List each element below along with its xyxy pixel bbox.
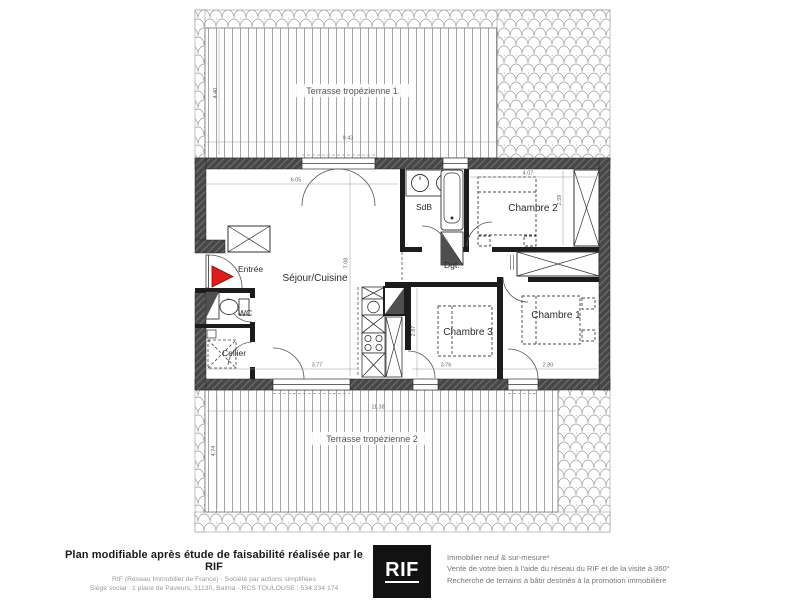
wc-label: WC — [238, 308, 252, 318]
chambre2-label: Chambre 2 — [508, 203, 558, 214]
dim-t1-h: 4.40 — [213, 88, 219, 99]
entry-closet — [228, 226, 270, 252]
footer-claim: Plan modifiable après étude de faisabili… — [58, 549, 370, 573]
floor-plan-drawing: Terrasse tropézienne 1 Terrasse tropézie… — [0, 0, 800, 540]
bathtub-icon — [441, 170, 463, 230]
footer-service-2: Vente de votre bien à l'aide du réseau d… — [447, 563, 697, 574]
hall-closet — [510, 252, 599, 276]
cellier-label: Cellier — [222, 348, 246, 358]
dim-sejour-w: 6.05 — [291, 178, 302, 184]
dim-ch1-w: 2.80 — [543, 363, 554, 369]
stove-icon — [362, 333, 385, 353]
terrace-2-label: Terrasse tropézienne 2 — [326, 434, 418, 444]
chambre2-closet — [574, 170, 599, 246]
rif-logo: RIF — [373, 545, 431, 598]
floor-plan-page: Terrasse tropézienne 1 Terrasse tropézie… — [0, 0, 800, 600]
sejour-label: Séjour/Cuisine — [282, 273, 347, 284]
entree-label: Entrée — [238, 264, 263, 274]
rif-logo-text: RIF — [385, 560, 419, 583]
kitchen-sink-icon — [368, 301, 380, 313]
sdb-label: SdB — [416, 202, 432, 212]
footer-company-line: RIF (Réseau Immobilier de France) - Soci… — [58, 575, 370, 584]
footer-address-line: Siège social : 1 place de Paveurs, 31130… — [58, 584, 370, 593]
footer-left-block: Plan modifiable après étude de faisabili… — [58, 549, 370, 593]
dim-ch3-h: 2.87 — [411, 326, 417, 337]
kitchen-units — [362, 287, 385, 377]
duct-shaft — [384, 287, 405, 377]
toilet-icon — [220, 300, 238, 315]
dim-t2-w: 11.38 — [371, 405, 384, 411]
chambre3-label: Chambre 3 — [443, 327, 493, 338]
footer-service-1: Immobilier neuf & sur-mesure* — [447, 552, 697, 563]
dim-ch3-w: 3.76 — [441, 363, 452, 369]
dim-sejour-bw: 3.77 — [312, 363, 323, 369]
dim-ch2-w: 4.07 — [523, 171, 534, 177]
dgt-label: Dgt. — [444, 260, 460, 270]
dim-t2-h: 4.74 — [211, 446, 217, 457]
dim-ch2-h: 2.59 — [557, 195, 563, 206]
terrace-1-label: Terrasse tropézienne 1 — [306, 86, 398, 96]
dim-sejour-h: 7.08 — [344, 258, 350, 269]
chambre1-label: Chambre 1 — [531, 310, 581, 321]
dim-t1-w: 9.43 — [343, 136, 354, 142]
footer-right-block: Immobilier neuf & sur-mesure* Vente de v… — [447, 552, 697, 586]
footer-service-3: Recherche de terrains à bâtir destinés à… — [447, 575, 697, 586]
